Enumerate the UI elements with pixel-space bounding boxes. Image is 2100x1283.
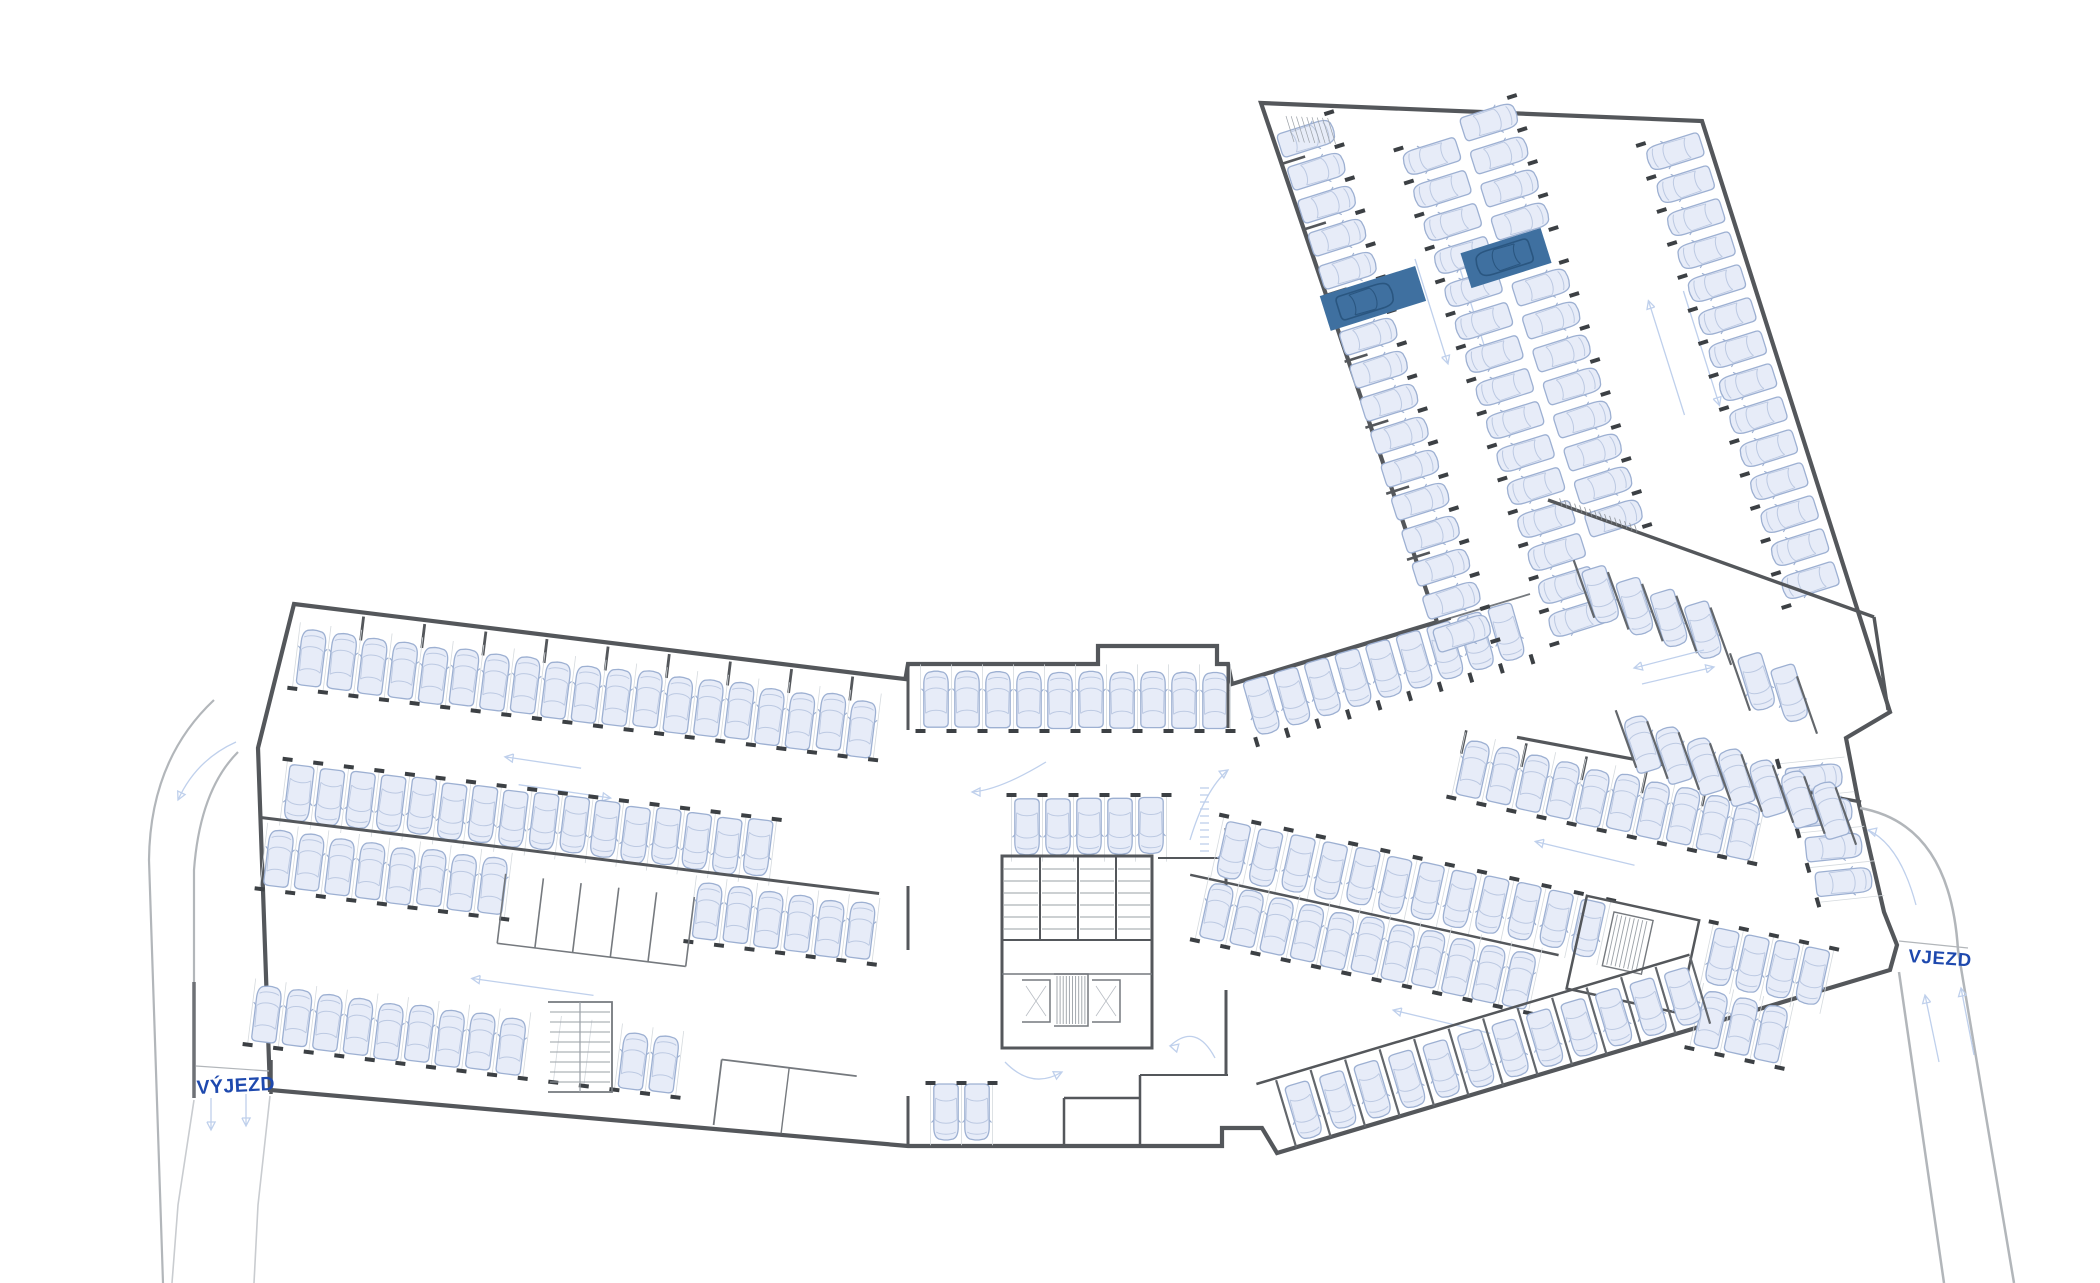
svg-text:VJEZD: VJEZD [1908, 945, 1973, 970]
svg-text:VÝJEZD: VÝJEZD [196, 1071, 275, 1099]
